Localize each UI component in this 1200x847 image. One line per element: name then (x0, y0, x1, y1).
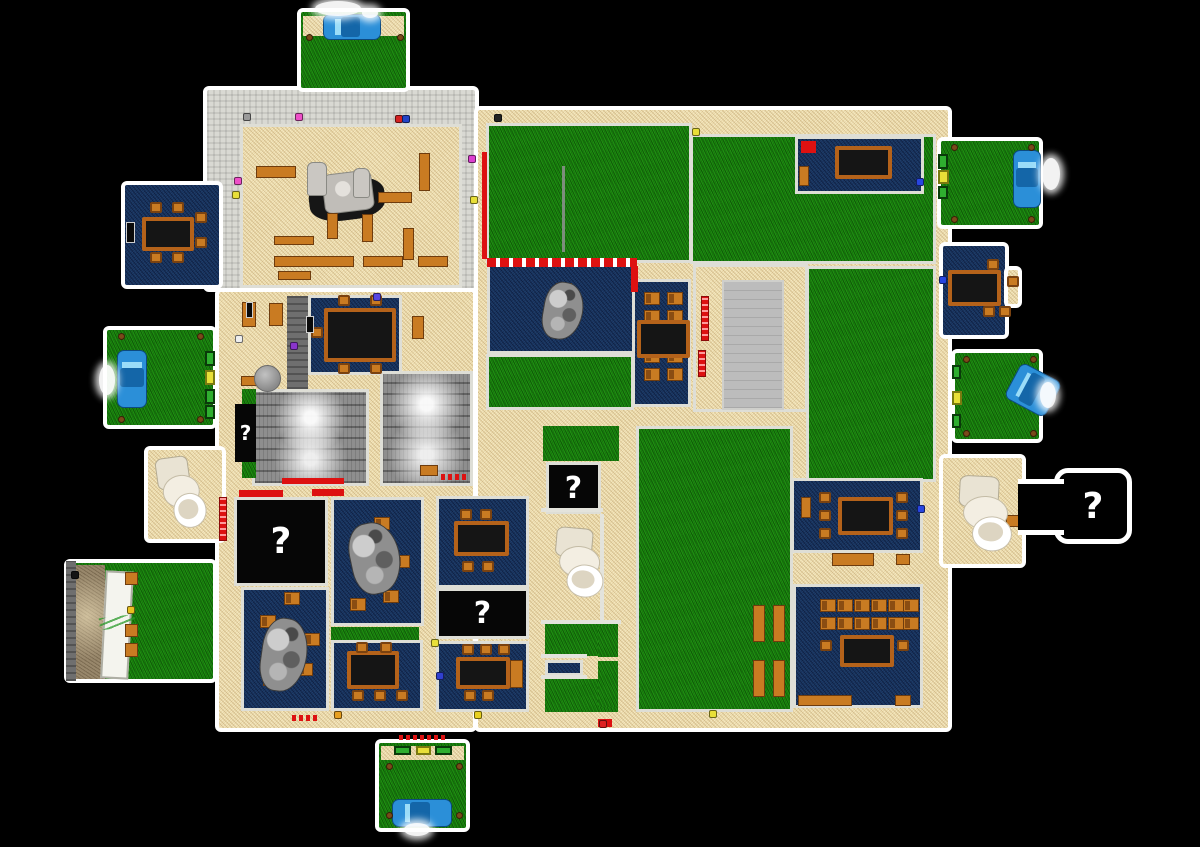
item-pickup (494, 114, 502, 122)
item-box (952, 365, 961, 379)
chair (896, 528, 908, 539)
car-cab (410, 802, 430, 824)
floor-plan-map: ????? (0, 0, 1200, 847)
wooden-bench (362, 214, 373, 242)
plant-pot (456, 763, 463, 770)
wooden-bench (799, 166, 809, 186)
classroom-table-c2 (456, 657, 510, 689)
chair (396, 690, 408, 701)
wall-screen (246, 302, 253, 318)
meeting-table-right (948, 270, 1001, 306)
chair (150, 202, 162, 213)
item-pickup (468, 155, 476, 163)
chair (820, 640, 832, 651)
student-desk (667, 368, 683, 381)
big-field-bottom (636, 426, 793, 712)
item-pickup (235, 335, 243, 343)
item-pickup (692, 128, 700, 136)
exhaust-cloud (99, 365, 115, 395)
chair-notch (1004, 266, 1022, 308)
wooden-bench (801, 497, 811, 518)
wooden-bench (363, 256, 403, 267)
red-marking (282, 478, 344, 484)
question-mark[interactable]: ? (1059, 473, 1127, 539)
entrance-dark-edge (66, 561, 76, 681)
flag-pole (562, 166, 565, 252)
castle-tower (307, 162, 327, 196)
wall-segment (541, 675, 587, 679)
wooden-bench (773, 660, 785, 697)
chair (1007, 276, 1019, 287)
plant-pot (1028, 216, 1035, 223)
chair (896, 492, 908, 503)
question-mark[interactable]: ? (237, 500, 325, 583)
item-pickup (234, 177, 242, 185)
plant-pot (951, 216, 958, 223)
chair (195, 237, 207, 248)
red-marking (312, 489, 344, 496)
item-pickup (916, 178, 924, 186)
student-desk (644, 368, 660, 381)
red-marking (801, 141, 816, 153)
field-right-mid (806, 266, 936, 482)
chair (460, 509, 472, 520)
car-glass (405, 804, 411, 822)
unknown-room-callout[interactable]: ? (1054, 468, 1132, 544)
item-box (952, 414, 961, 428)
plant-pot (118, 333, 125, 340)
ladder (698, 350, 706, 377)
wooden-bench (418, 256, 448, 267)
blackboard-right-2 (840, 635, 894, 667)
item-pickup (71, 571, 79, 579)
item-box (435, 746, 452, 755)
chair (462, 561, 474, 572)
green-patch-b (598, 661, 618, 707)
item-box (205, 405, 215, 419)
item-box (394, 746, 411, 755)
student-desk (854, 617, 870, 630)
wooden-bench (412, 316, 424, 339)
chair (983, 306, 995, 317)
wooden-bench (896, 554, 910, 565)
exhaust-cloud (1042, 158, 1060, 190)
item-pickup (474, 711, 482, 719)
item-pickup (290, 342, 298, 350)
wooden-bench (378, 192, 412, 203)
wooden-bench (274, 236, 314, 245)
chair (480, 509, 492, 520)
item-pickup (373, 293, 381, 301)
item-box (938, 186, 948, 199)
wall-segment (541, 508, 603, 512)
wooden-bench (773, 605, 785, 642)
conference-table-center (324, 308, 396, 362)
navy-strip-bottom (545, 660, 583, 676)
plant-pot (386, 812, 393, 819)
wooden-bench (125, 643, 138, 657)
item-box (416, 746, 431, 755)
red-marking (482, 152, 487, 259)
item-box (205, 389, 215, 404)
wooden-bench (510, 660, 523, 688)
wooden-bench (753, 660, 765, 697)
question-mark[interactable]: ? (439, 591, 526, 636)
chair (352, 690, 364, 701)
chair (897, 640, 909, 651)
round-table (254, 365, 281, 392)
toilet (151, 453, 211, 533)
exhaust-cloud (404, 823, 430, 836)
wall-segment (541, 620, 621, 624)
chair (195, 212, 207, 223)
plant-pot (1028, 144, 1035, 151)
chair (462, 644, 474, 655)
chair (150, 252, 162, 263)
wooden-bench (278, 271, 311, 280)
ladder (219, 497, 227, 541)
wooden-bench (256, 166, 296, 178)
chair (819, 528, 831, 539)
chair (999, 306, 1011, 317)
castle-tower (353, 168, 370, 198)
wooden-bench (125, 572, 138, 585)
red-marking (441, 474, 469, 480)
item-pickup (232, 191, 240, 199)
item-box (938, 170, 949, 184)
chair (338, 295, 350, 306)
item-pickup (243, 113, 251, 121)
wooden-bench (125, 624, 138, 637)
chair (819, 492, 831, 503)
student-desk (854, 599, 870, 612)
stage-room-a (252, 389, 369, 486)
toilet (952, 474, 1018, 553)
toilet (548, 526, 610, 601)
classroom-table-c1 (454, 521, 509, 556)
plant-pot (963, 356, 970, 363)
wooden-bench (895, 695, 911, 706)
red-marking (631, 266, 638, 292)
blackboard-right-1 (838, 497, 893, 535)
chair (356, 642, 368, 653)
item-pickup (709, 710, 717, 718)
item-pickup (295, 113, 303, 121)
blue-car (323, 14, 381, 40)
blue-car (1013, 150, 1041, 208)
unknown-room-2: ? (436, 588, 529, 639)
student-desk (820, 617, 836, 630)
car-cab (1016, 168, 1038, 187)
plant-pot (456, 812, 463, 819)
conference-table-bottom (347, 651, 399, 689)
chair (896, 510, 908, 521)
item-pickup (431, 639, 439, 647)
student-desk (644, 292, 660, 305)
red-marking (487, 258, 637, 267)
wooden-bench (274, 256, 354, 267)
unknown-room-marker[interactable]: ? (235, 404, 256, 462)
wooden-bench (269, 303, 283, 326)
wooden-bench (403, 228, 414, 260)
item-pickup (402, 115, 410, 123)
blackboard-top-right (835, 146, 892, 179)
green-strip-a (331, 627, 419, 640)
callout-connector (1018, 479, 1064, 535)
student-desk (888, 599, 904, 612)
question-mark[interactable]: ? (549, 465, 598, 511)
plant-pot (1030, 356, 1037, 363)
plant-pot (1030, 430, 1037, 437)
plant-pot (118, 416, 125, 423)
exhaust-cloud (315, 1, 361, 16)
exhaust-cloud (1040, 382, 1056, 408)
chair (482, 690, 494, 701)
student-desk (667, 292, 683, 305)
chair (374, 690, 386, 701)
chair (172, 252, 184, 263)
chair (370, 363, 382, 374)
chair (987, 259, 999, 270)
green-pad-2 (242, 461, 256, 478)
chair (498, 644, 510, 655)
item-pickup (470, 196, 478, 204)
item-pickup (917, 505, 925, 513)
wooden-bench (753, 605, 765, 642)
unknown-room-1: ? (234, 497, 328, 586)
field-left-of-court (486, 354, 634, 410)
plant-pot (951, 144, 958, 151)
car-glass (335, 19, 341, 36)
chair (172, 202, 184, 213)
chair (464, 690, 476, 701)
student-desk (888, 617, 904, 630)
plant-pot (386, 763, 393, 770)
car-cab (341, 17, 360, 37)
courtyard-slab (722, 280, 784, 410)
green-patch-a (598, 626, 618, 657)
meeting-table-left (142, 217, 194, 251)
classroom-table-mid (637, 320, 690, 358)
student-desk (350, 598, 366, 611)
chair (819, 510, 831, 521)
chair (338, 363, 350, 374)
wooden-bench (327, 213, 338, 239)
student-desk (820, 599, 836, 612)
wooden-bench (798, 695, 852, 706)
plant-pot (306, 34, 313, 41)
wooden-bench (419, 153, 430, 191)
green-lane-1 (543, 426, 619, 461)
red-marking (239, 490, 283, 497)
chair (480, 644, 492, 655)
plant-pot (397, 34, 404, 41)
green-pad-1 (242, 389, 256, 405)
car-cab (120, 368, 144, 387)
item-pickup (599, 720, 607, 728)
red-marking (399, 735, 445, 740)
plant-pot (197, 416, 204, 423)
exhaust-cloud (362, 8, 378, 18)
car-glass (122, 362, 142, 368)
chair (380, 642, 392, 653)
unknown-room-3: ? (546, 462, 601, 514)
wall-screen (306, 316, 314, 333)
item-box (205, 370, 215, 385)
student-desk (903, 599, 919, 612)
item-pickup (436, 672, 444, 680)
student-desk (871, 617, 887, 630)
student-desk (837, 599, 853, 612)
blue-car (117, 350, 147, 408)
field-top-left (486, 123, 692, 263)
item-box (952, 391, 962, 405)
car-glass (1018, 162, 1036, 168)
wooden-bench (420, 465, 438, 476)
question-mark[interactable]: ? (235, 404, 256, 462)
plant-pot (197, 333, 204, 340)
wall-screen (126, 222, 135, 243)
wall-segment (541, 654, 587, 658)
item-pickup (334, 711, 342, 719)
student-desk (837, 617, 853, 630)
plant-pot (963, 430, 970, 437)
item-pickup (939, 276, 947, 284)
wooden-bench (832, 553, 874, 566)
ladder (701, 296, 709, 341)
student-desk (871, 599, 887, 612)
item-box (938, 154, 948, 169)
item-pickup (127, 606, 135, 614)
item-box (205, 351, 215, 366)
student-desk (284, 592, 300, 605)
chair (482, 561, 494, 572)
red-marking (292, 715, 318, 721)
student-desk (903, 617, 919, 630)
